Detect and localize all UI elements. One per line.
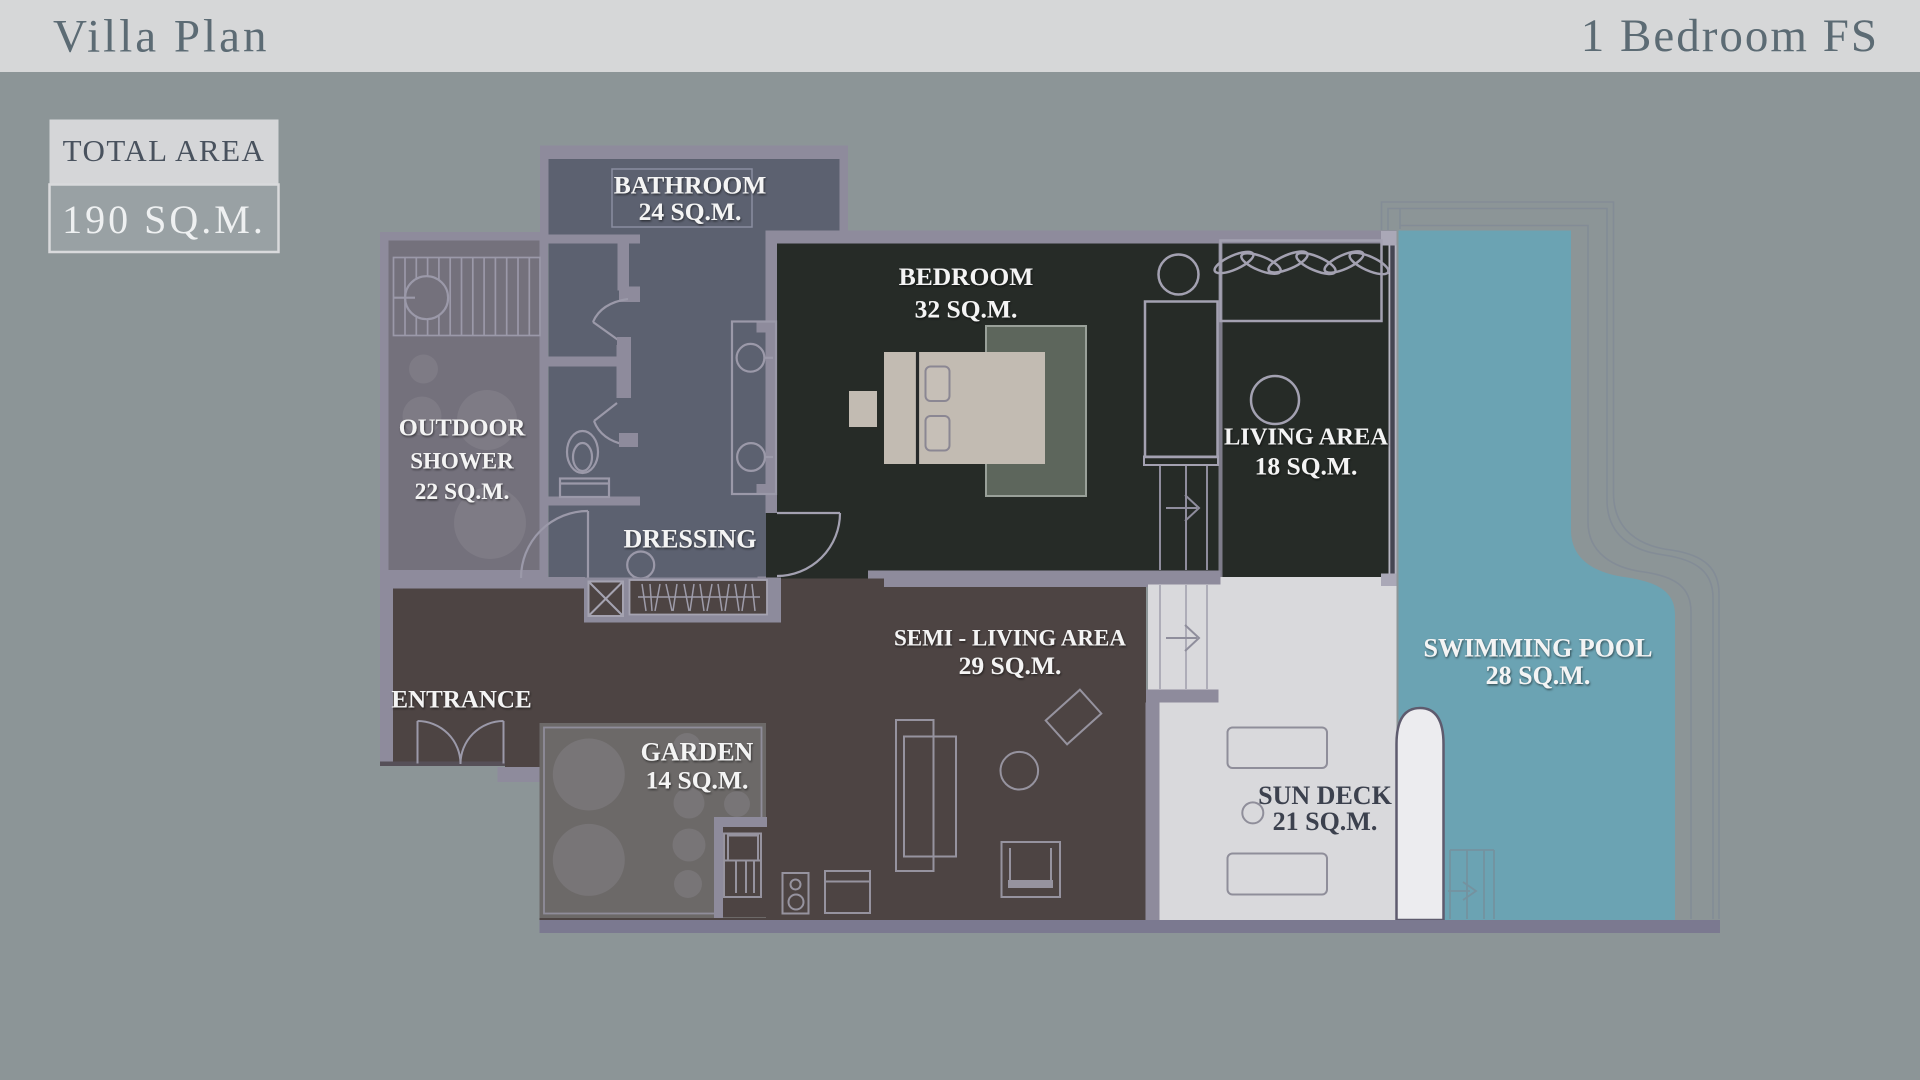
svg-text:SWIMMING POOL: SWIMMING POOL bbox=[1424, 634, 1653, 663]
svg-text:1 Bedroom FS: 1 Bedroom FS bbox=[1581, 10, 1879, 62]
svg-text:SUN DECK: SUN DECK bbox=[1258, 781, 1392, 810]
svg-text:BEDROOM: BEDROOM bbox=[899, 262, 1034, 291]
svg-text:21 SQ.M.: 21 SQ.M. bbox=[1273, 807, 1378, 836]
svg-text:29 SQ.M.: 29 SQ.M. bbox=[959, 651, 1062, 680]
svg-text:BATHROOM: BATHROOM bbox=[614, 171, 767, 200]
svg-text:32 SQ.M.: 32 SQ.M. bbox=[915, 295, 1018, 324]
svg-text:24 SQ.M.: 24 SQ.M. bbox=[639, 197, 742, 226]
svg-text:SHOWER: SHOWER bbox=[410, 449, 514, 474]
svg-text:Villa Plan: Villa Plan bbox=[53, 11, 269, 63]
svg-text:SEMI - LIVING AREA: SEMI - LIVING AREA bbox=[894, 626, 1126, 651]
svg-text:14 SQ.M.: 14 SQ.M. bbox=[646, 766, 749, 795]
svg-text:22 SQ.M.: 22 SQ.M. bbox=[415, 479, 510, 505]
svg-text:LIVING AREA: LIVING AREA bbox=[1224, 424, 1388, 451]
svg-text:OUTDOOR: OUTDOOR bbox=[399, 415, 526, 442]
svg-text:190 SQ.M.: 190 SQ.M. bbox=[62, 197, 266, 242]
svg-text:ENTRANCE: ENTRANCE bbox=[391, 687, 531, 714]
svg-text:GARDEN: GARDEN bbox=[641, 738, 754, 767]
svg-text:18 SQ.M.: 18 SQ.M. bbox=[1255, 452, 1358, 481]
svg-text:DRESSING: DRESSING bbox=[624, 525, 757, 554]
svg-text:TOTAL AREA: TOTAL AREA bbox=[63, 133, 266, 168]
svg-text:28 SQ.M.: 28 SQ.M. bbox=[1486, 661, 1591, 690]
